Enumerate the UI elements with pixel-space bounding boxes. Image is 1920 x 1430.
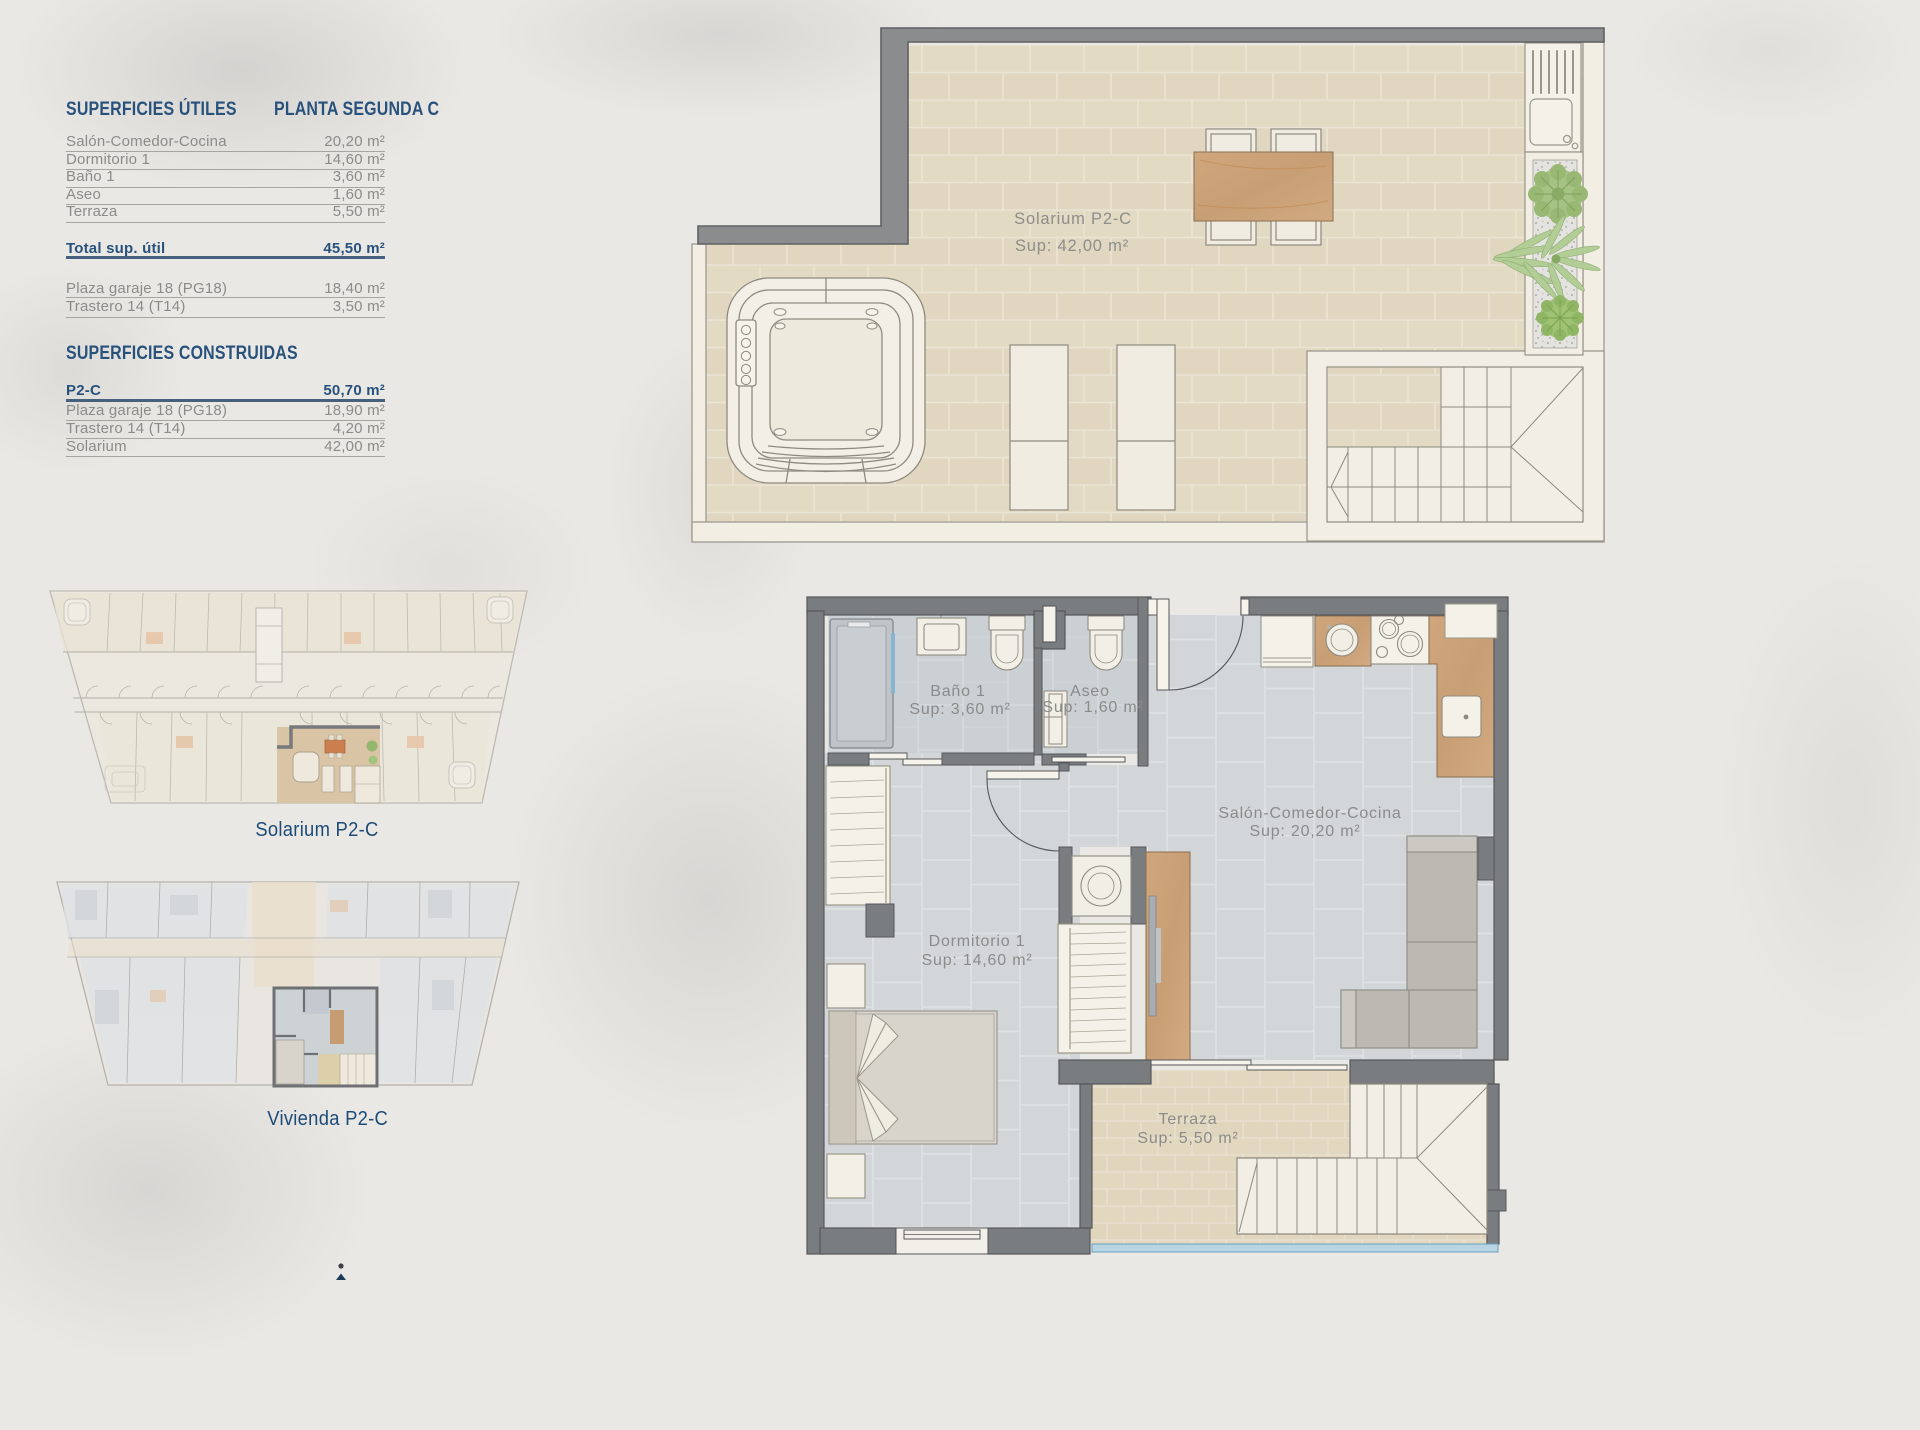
svg-text:Sup: 3,60 m²: Sup: 3,60 m² — [909, 701, 1010, 718]
svg-text:Aseo: Aseo — [1070, 683, 1110, 700]
svg-text:Baño 1: Baño 1 — [930, 683, 986, 700]
svg-text:Terraza: Terraza — [1159, 1111, 1218, 1128]
svg-text:Solarium P2-C: Solarium P2-C — [1014, 210, 1132, 228]
svg-text:Sup: 14,60 m²: Sup: 14,60 m² — [922, 952, 1033, 969]
svg-text:Sup: 1,60 m²: Sup: 1,60 m² — [1042, 699, 1143, 716]
svg-text:Sup: 20,20 m²: Sup: 20,20 m² — [1250, 823, 1361, 840]
svg-text:Salón-Comedor-Cocina: Salón-Comedor-Cocina — [1218, 805, 1401, 822]
svg-text:Dormitorio 1: Dormitorio 1 — [929, 933, 1026, 950]
svg-text:Sup: 42,00 m²: Sup: 42,00 m² — [1015, 237, 1129, 255]
svg-text:Sup: 5,50 m²: Sup: 5,50 m² — [1137, 1130, 1238, 1147]
